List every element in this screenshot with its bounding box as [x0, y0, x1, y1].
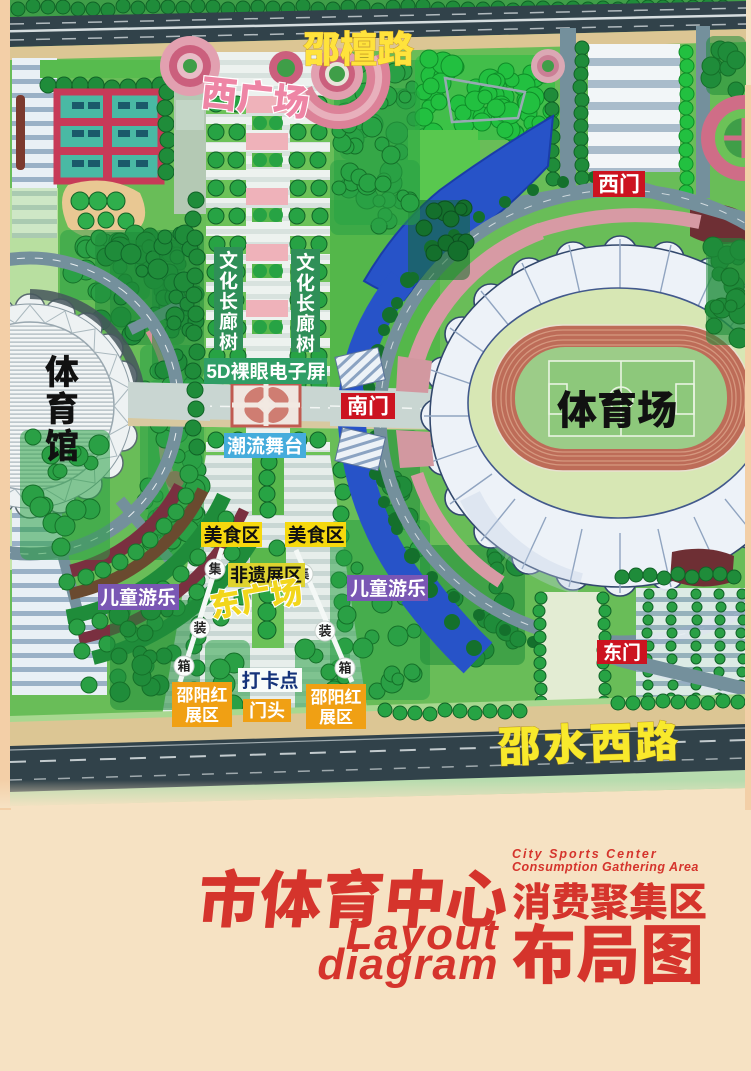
svg-text:打卡点: 打卡点	[241, 666, 298, 693]
svg-text:展区: 展区	[185, 701, 219, 726]
svg-text:南门: 南门	[347, 391, 389, 421]
svg-text:美食区: 美食区	[203, 520, 260, 547]
svg-text:美食区: 美食区	[287, 520, 344, 547]
svg-text:5D裸眼电子屏: 5D裸眼电子屏	[206, 357, 325, 384]
svg-text:儿童游乐: 儿童游乐	[350, 574, 426, 601]
svg-text:儿童游乐: 儿童游乐	[100, 583, 176, 610]
svg-text:树: 树	[296, 330, 315, 357]
svg-text:布局图: 布局图	[512, 905, 704, 997]
svg-text:馆: 馆	[45, 419, 79, 468]
svg-text:展区: 展区	[319, 703, 353, 728]
svg-text:西门: 西门	[598, 169, 640, 199]
svg-text:City Sports Center: City Sports Center	[512, 847, 658, 861]
svg-text:箱: 箱	[177, 656, 190, 675]
svg-text:邵水西路: 邵水西路	[496, 707, 682, 775]
svg-text:集: 集	[208, 559, 221, 578]
svg-text:树: 树	[219, 328, 238, 355]
svg-text:箱: 箱	[338, 658, 351, 677]
svg-text:diagram: diagram	[317, 940, 499, 989]
svg-text:体育场: 体育场	[557, 378, 677, 436]
svg-text:装: 装	[318, 621, 331, 640]
svg-text:潮流舞台: 潮流舞台	[227, 431, 303, 458]
svg-text:东门: 东门	[603, 638, 641, 665]
svg-text:邵檀路: 邵檀路	[303, 19, 414, 73]
svg-text:装: 装	[193, 618, 206, 637]
svg-text:门头: 门头	[249, 697, 285, 723]
